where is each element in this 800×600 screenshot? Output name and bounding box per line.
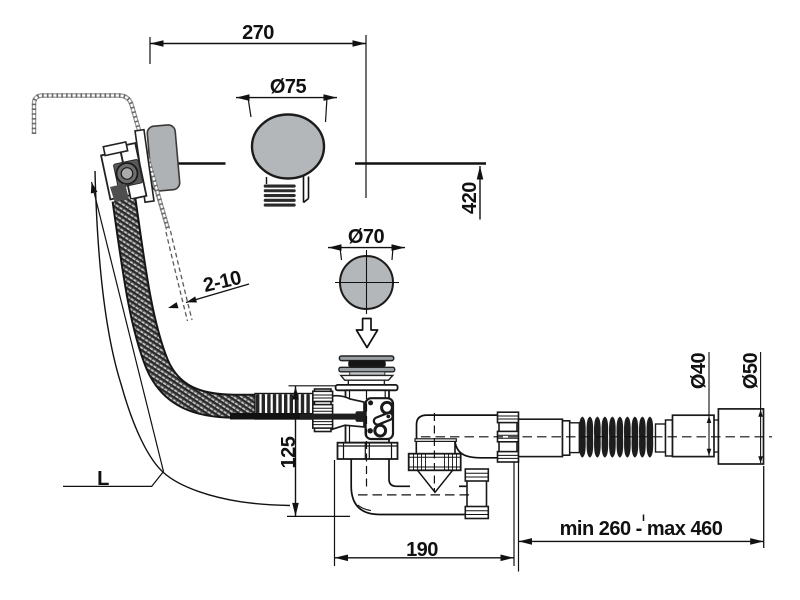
svg-text:min 260 - max 460: min 260 - max 460 xyxy=(560,518,723,540)
svg-text:270: 270 xyxy=(242,22,274,44)
svg-text:420: 420 xyxy=(459,182,481,214)
svg-text:125: 125 xyxy=(278,436,300,468)
svg-text:Ø50: Ø50 xyxy=(740,352,762,389)
svg-text:L: L xyxy=(97,468,109,490)
svg-text:Ø70: Ø70 xyxy=(348,226,385,248)
svg-text:Ø40: Ø40 xyxy=(688,352,710,389)
svg-text:Ø75: Ø75 xyxy=(270,76,307,98)
